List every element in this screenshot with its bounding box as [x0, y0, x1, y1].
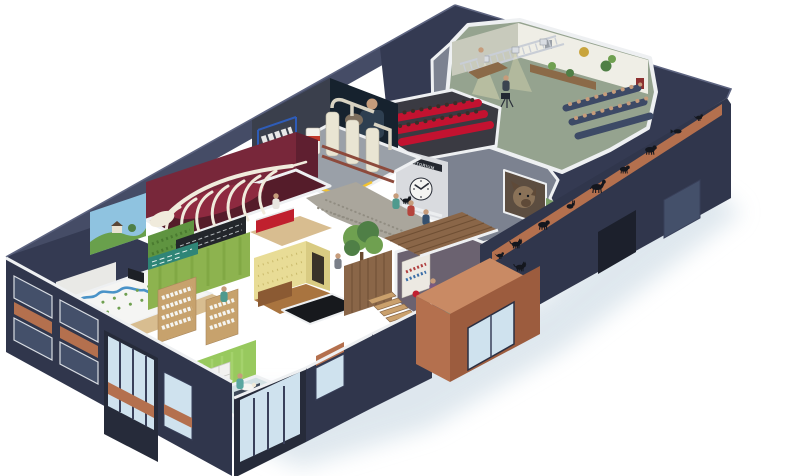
scene-canvas: AUDITORIUM	[0, 0, 800, 476]
isometric-building-illustration: AUDITORIUM	[0, 0, 800, 476]
studio-gold-disc	[579, 47, 589, 57]
tree-foliage-4	[344, 240, 360, 256]
visitor	[334, 253, 341, 269]
studio-plant-pot-2	[566, 69, 574, 77]
studio-camera	[501, 93, 510, 99]
mural-cottage	[112, 226, 122, 233]
tree-foliage-3	[365, 236, 383, 254]
studio-camera-operator	[502, 75, 509, 91]
receptionist	[272, 193, 279, 209]
studio-spotlight-3	[540, 39, 547, 45]
mural-tree	[128, 224, 136, 232]
dog-eye-2	[527, 195, 529, 197]
shopper	[220, 286, 227, 302]
studio-plant-large-2	[608, 55, 616, 63]
dog-eye	[519, 193, 521, 195]
veterinarian	[236, 373, 243, 389]
visitor	[392, 193, 399, 209]
tree-trunk	[360, 252, 363, 261]
studio-presenter	[477, 47, 484, 63]
studio-spotlight-2	[512, 47, 519, 53]
patient-dog-head	[252, 383, 256, 387]
dog-muzzle	[521, 199, 531, 207]
historic-doorway	[312, 252, 324, 285]
photo-man-head	[367, 99, 378, 110]
visitor	[422, 209, 429, 225]
studio-plant-pot	[548, 62, 556, 70]
visitor	[407, 200, 414, 216]
